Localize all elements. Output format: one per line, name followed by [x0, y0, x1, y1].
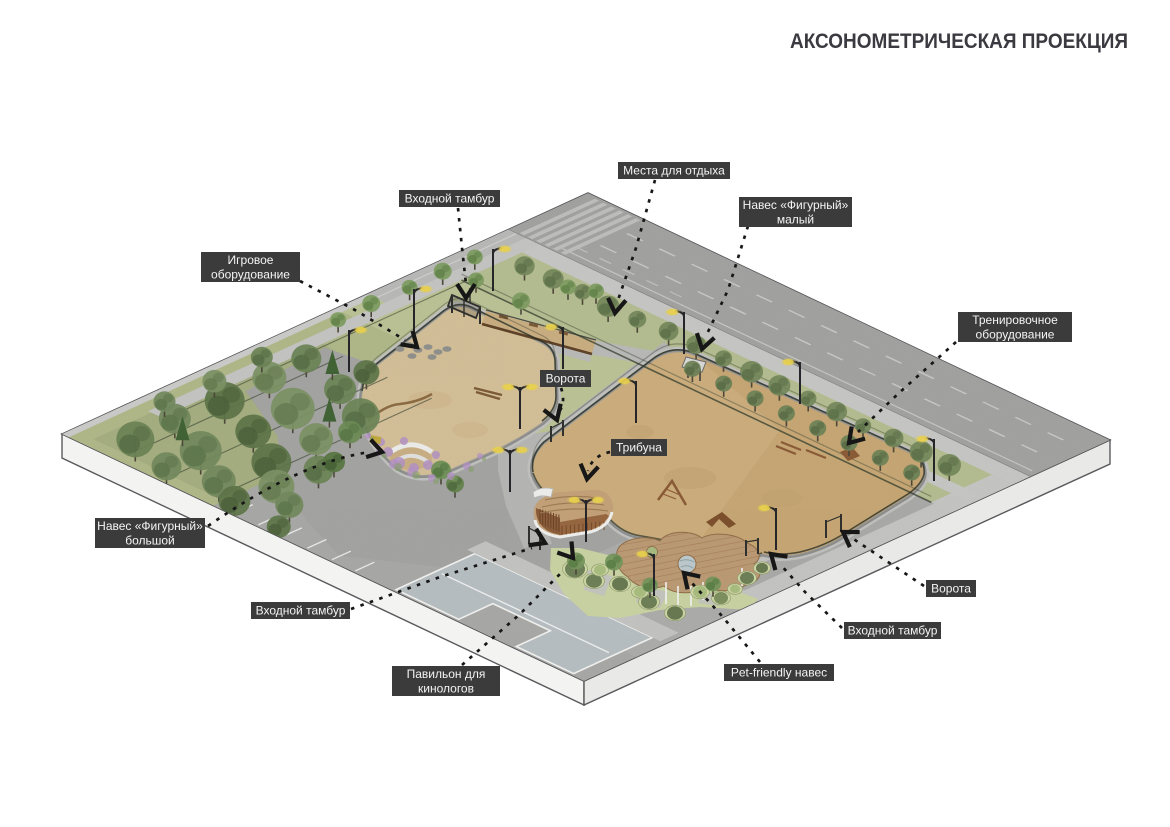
svg-text:Павильон для: Павильон для: [407, 667, 486, 681]
svg-text:оборудование: оборудование: [976, 327, 1055, 341]
svg-text:Ворота: Ворота: [931, 582, 971, 596]
svg-text:Входной тамбур: Входной тамбур: [256, 604, 346, 618]
svg-text:большой: большой: [125, 534, 175, 548]
svg-text:Тренировочное: Тренировочное: [972, 313, 1058, 327]
svg-text:Трибуна: Трибуна: [616, 441, 662, 455]
svg-text:Игровое: Игровое: [228, 253, 274, 267]
svg-text:Pet-friendly навес: Pet-friendly навес: [731, 666, 827, 680]
svg-text:кинологов: кинологов: [418, 682, 474, 696]
svg-text:Входной тамбур: Входной тамбур: [405, 192, 495, 206]
svg-text:оборудование: оборудование: [211, 267, 290, 281]
svg-text:Навес «Фигурный»: Навес «Фигурный»: [97, 519, 203, 533]
svg-text:Навес «Фигурный»: Навес «Фигурный»: [743, 198, 849, 212]
svg-text:Ворота: Ворота: [546, 372, 586, 386]
svg-text:Входной тамбур: Входной тамбур: [848, 624, 938, 638]
svg-text:малый: малый: [777, 212, 814, 226]
svg-text:Места для отдыха: Места для отдыха: [623, 164, 725, 178]
svg-text:АКСОНОМЕТРИЧЕСКАЯ ПРОЕКЦИЯ: АКСОНОМЕТРИЧЕСКАЯ ПРОЕКЦИЯ: [790, 29, 1128, 53]
